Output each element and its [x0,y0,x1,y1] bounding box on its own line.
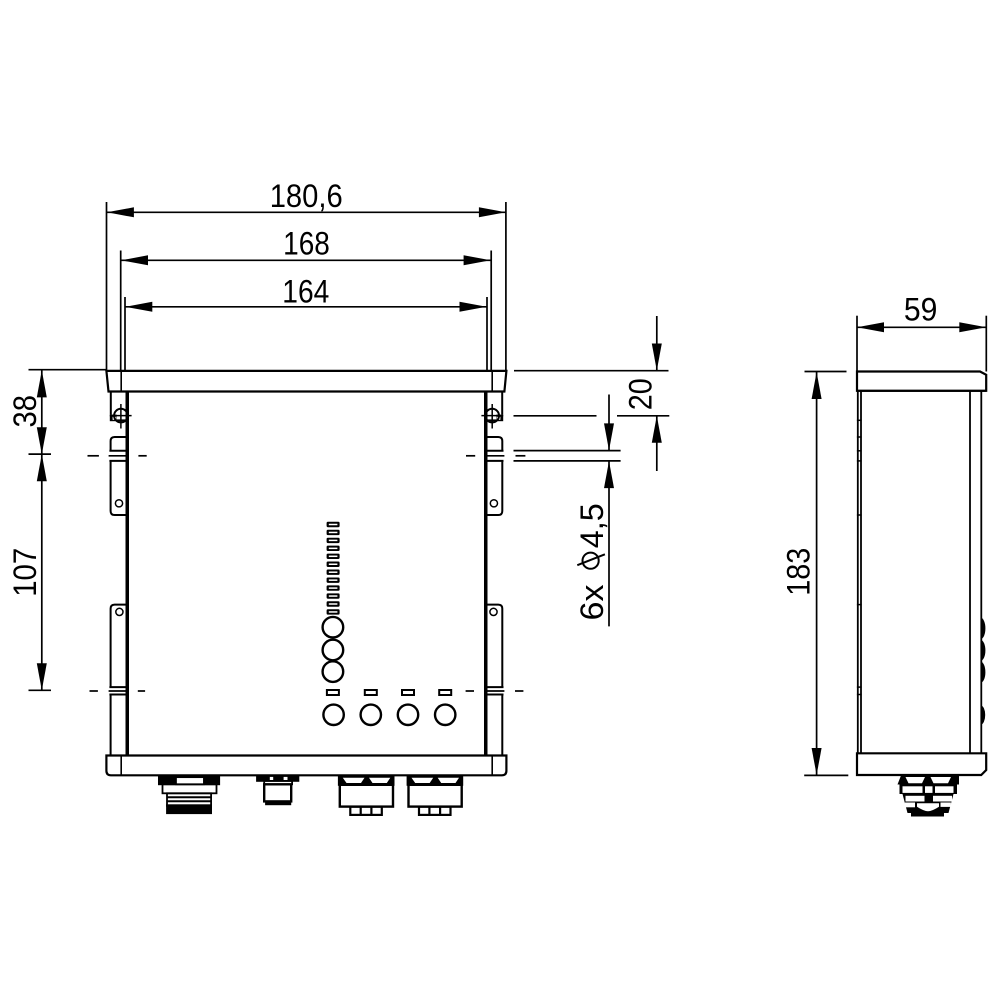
svg-text:168: 168 [283,226,330,262]
svg-text:164: 164 [282,273,329,309]
svg-text:180,6: 180,6 [270,178,343,214]
svg-text:107: 107 [7,548,43,597]
svg-text:183: 183 [780,548,816,596]
svg-text:59: 59 [904,291,938,327]
svg-text:38: 38 [7,395,43,428]
svg-text:20: 20 [622,378,658,410]
svg-text:4,5: 4,5 [574,503,610,548]
svg-text:6x: 6x [574,585,610,621]
